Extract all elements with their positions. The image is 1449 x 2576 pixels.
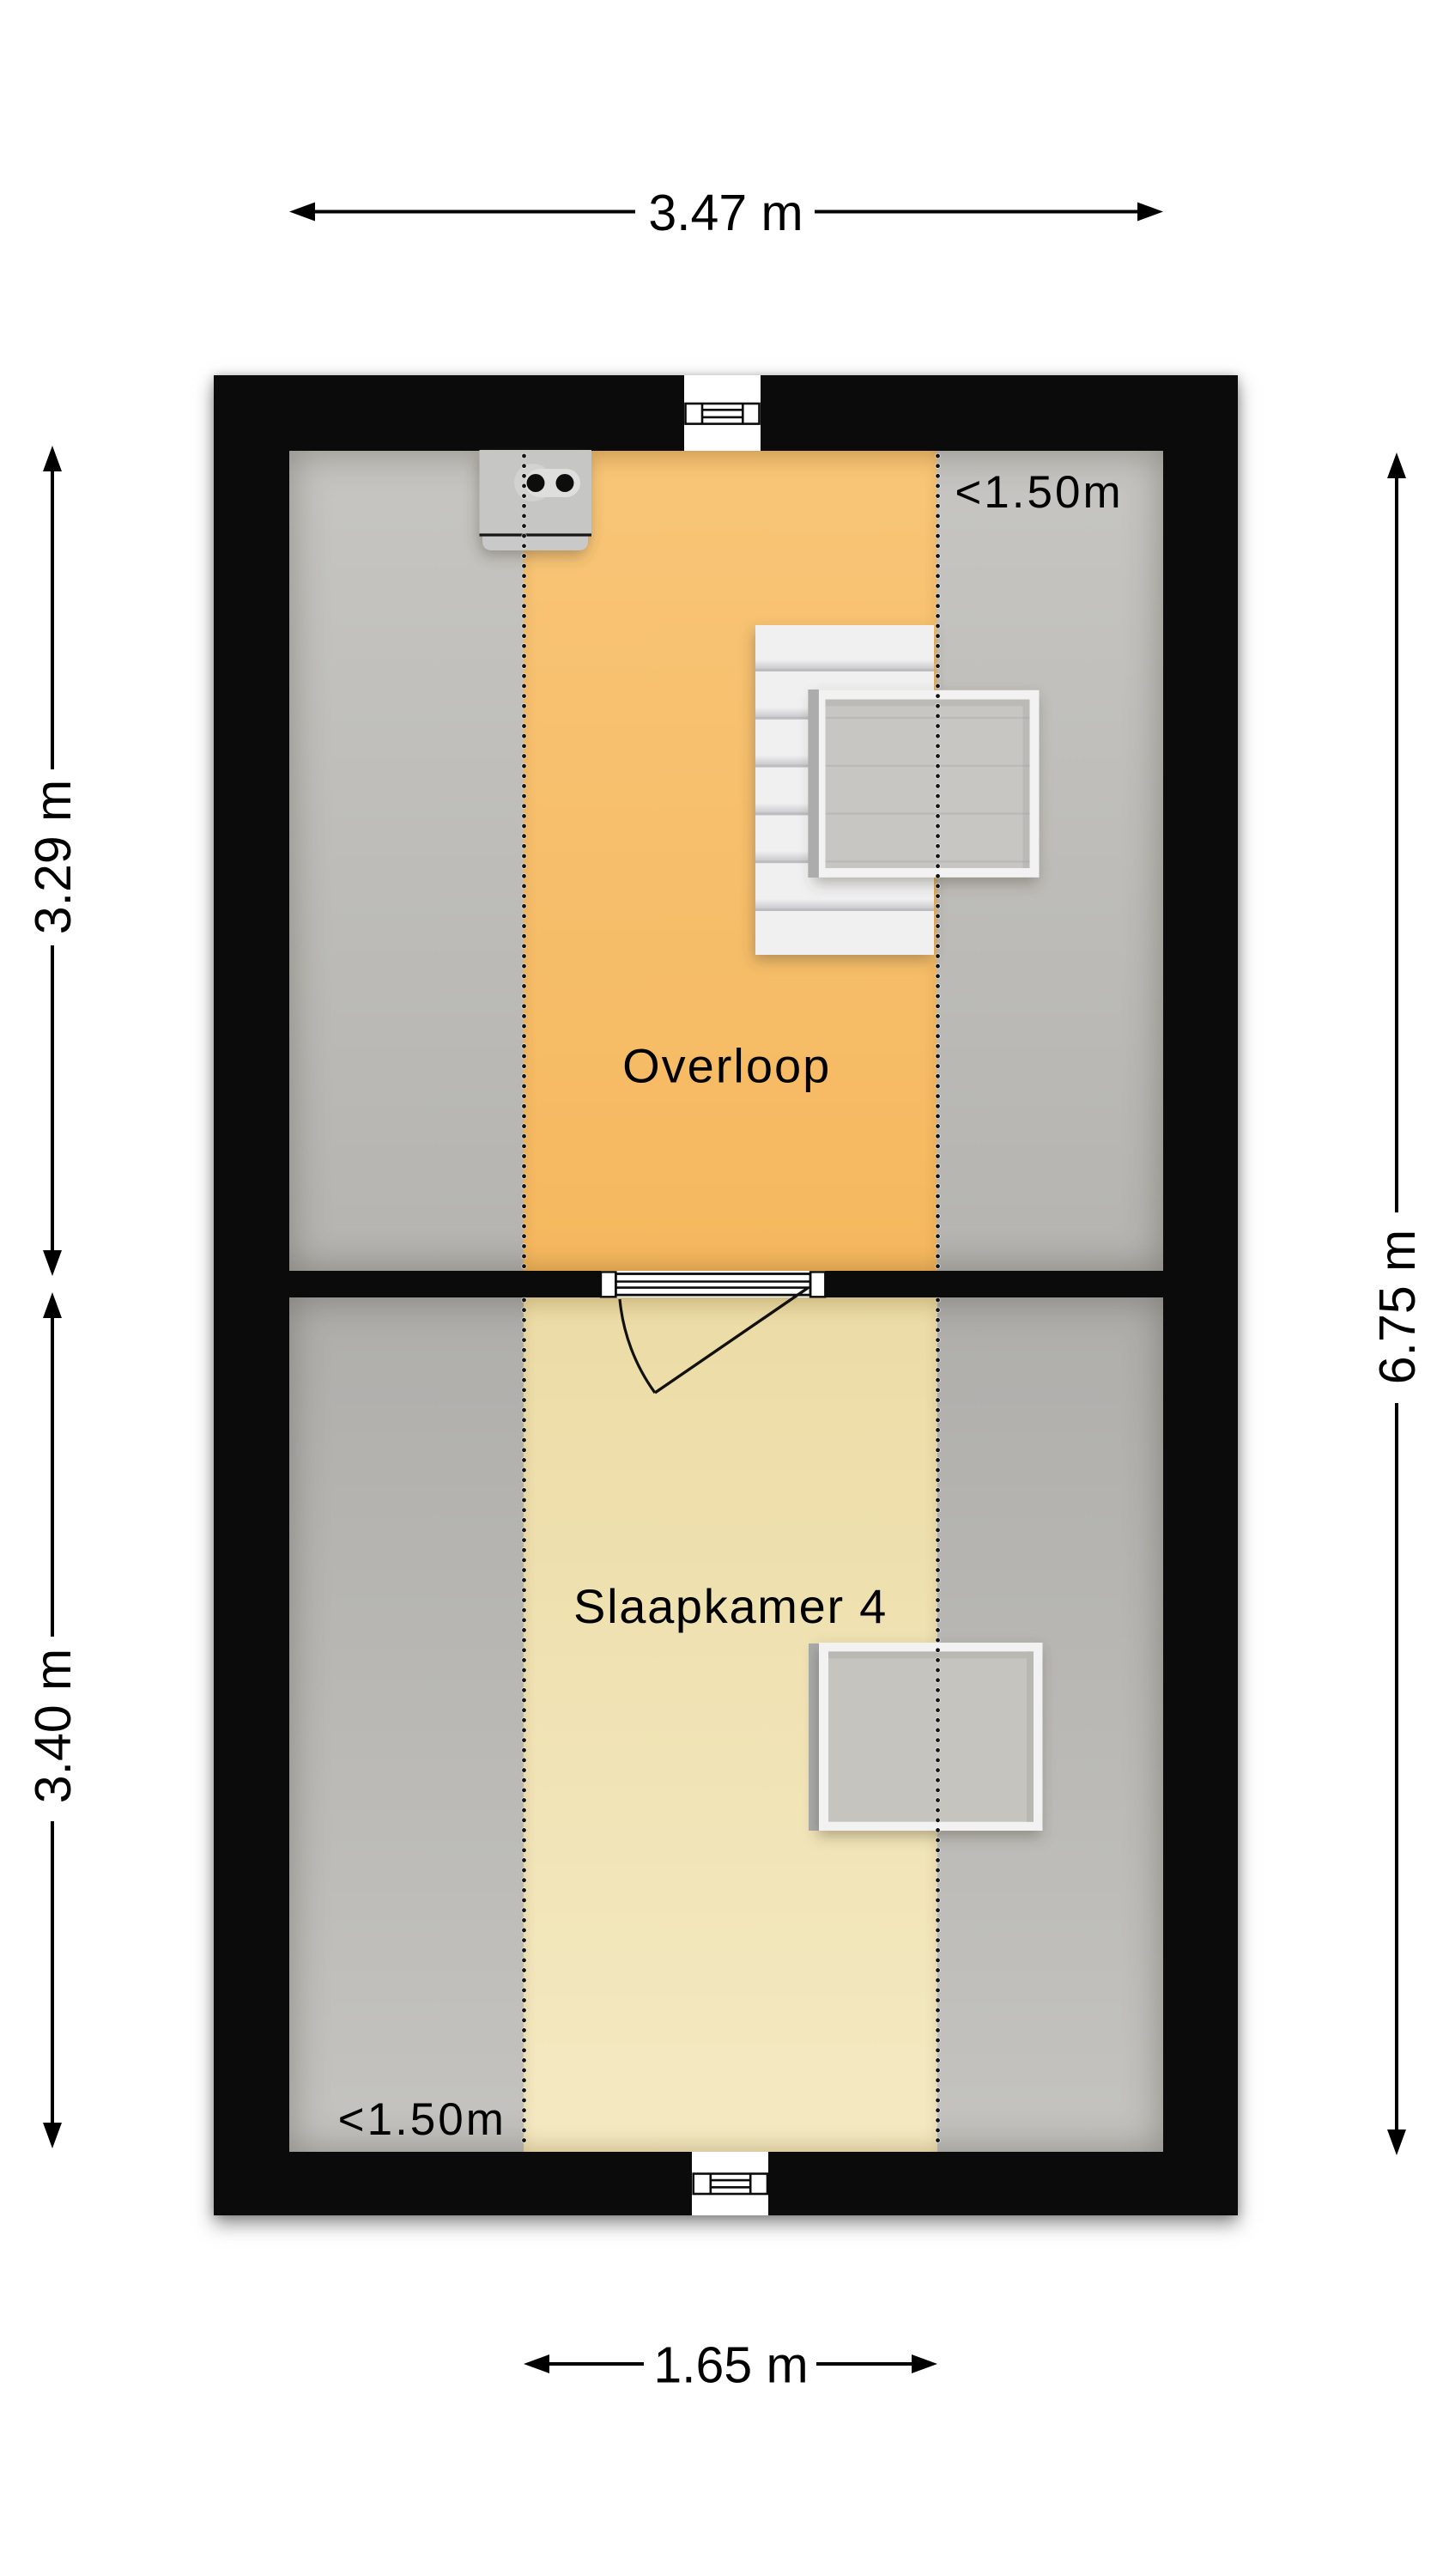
- svg-text:Overloop: Overloop: [622, 1039, 831, 1093]
- svg-text:<1.50m: <1.50m: [338, 2094, 506, 2145]
- svg-text:3.40 m: 3.40 m: [25, 1649, 82, 1803]
- svg-text:Slaapkamer 4: Slaapkamer 4: [573, 1579, 888, 1633]
- svg-text:3.47 m: 3.47 m: [648, 185, 803, 241]
- svg-text:6.75 m: 6.75 m: [1369, 1230, 1426, 1384]
- svg-text:3.29 m: 3.29 m: [25, 780, 82, 934]
- svg-text:<1.50m: <1.50m: [955, 467, 1123, 518]
- svg-text:1.65 m: 1.65 m: [653, 2337, 808, 2394]
